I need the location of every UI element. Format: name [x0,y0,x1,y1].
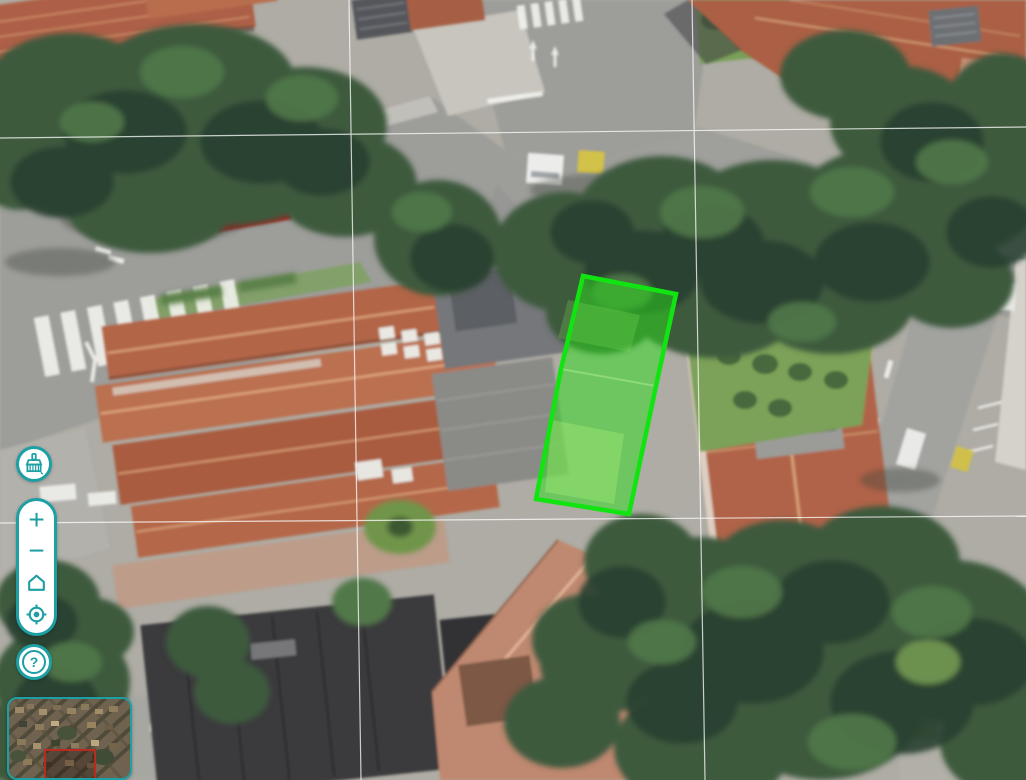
map-zoom-controls: + − [16,498,57,636]
home-icon [25,571,48,594]
crosshair-target-icon [25,603,48,626]
locate-button[interactable] [19,599,54,631]
overview-extent-rectangle[interactable] [44,749,96,780]
help-label: ? [30,654,39,670]
paintbrush-icon [23,453,45,475]
clear-selection-button[interactable] [16,446,52,482]
help-button[interactable]: ? [16,644,52,680]
home-button[interactable] [19,567,54,599]
zoom-out-button[interactable]: − [19,536,54,568]
help-question-icon: ? [22,650,46,674]
satellite-imagery [0,0,1026,780]
zoom-in-button[interactable]: + [19,504,54,536]
map-viewport[interactable]: + − ? [0,0,1026,780]
overview-map[interactable] [7,697,132,780]
